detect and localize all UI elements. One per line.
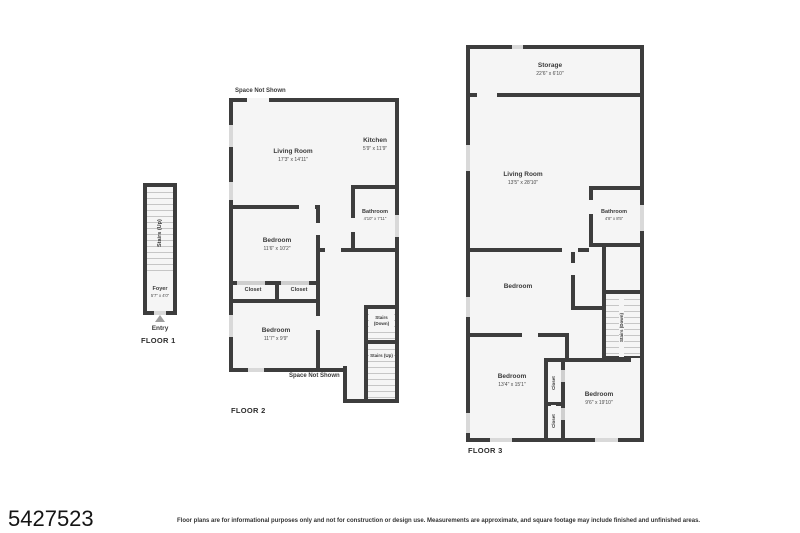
entry-arrow-icon: [155, 315, 165, 322]
floor1-entry-label: Entry: [146, 325, 174, 332]
room-name: Bathroom: [591, 209, 637, 216]
room-name: Bedroom: [236, 327, 316, 336]
room-name: Living Room: [253, 148, 333, 157]
door-opening: [247, 98, 269, 102]
wall: [275, 281, 279, 303]
room-dims: 13'5" x 28'10": [483, 180, 563, 186]
window: [229, 315, 233, 337]
floor2-space-not-shown-bottom: Space Not Shown: [289, 373, 340, 379]
floor1-stairs-label: Stairs (Up): [157, 193, 163, 273]
floor2-bedroom-bottom-label: Bedroom 11'7" x 9'9": [236, 327, 316, 342]
room-name: Bedroom: [237, 237, 317, 246]
room-dims: 17'3" x 14'11": [253, 157, 333, 163]
door-opening: [299, 205, 315, 209]
floor3-bathroom-label: Bathroom 4'8" x 8'5": [591, 209, 637, 222]
room-dims: 13'4" x 15'1": [472, 382, 552, 388]
floor2-plan: Stairs (Down) Stairs (Up) Space Not Show…: [229, 98, 399, 418]
door-opening: [631, 358, 640, 362]
room-dims: 9'6" x 19'10": [568, 400, 630, 406]
floor2-kitchen-label: Kitchen 5'9" x 11'9": [347, 137, 403, 152]
wall: [589, 186, 644, 190]
wall: [466, 333, 569, 337]
window: [466, 297, 470, 317]
floor2-bedroom-mid-label: Bedroom 11'6" x 10'2": [237, 237, 317, 252]
floor2-stairs-down-label: Stairs (Down): [369, 314, 394, 328]
wall: [571, 306, 606, 310]
floor2-title: FLOOR 2: [231, 406, 266, 415]
floor3-bedroom-mid-label: Bedroom: [478, 283, 558, 292]
room-name: Bedroom: [472, 373, 552, 382]
floor1-title: FLOOR 1: [141, 336, 176, 345]
wall: [229, 368, 347, 372]
wall: [351, 185, 395, 189]
door-opening: [477, 93, 497, 97]
floor3-closet-bottom-label: Closet: [551, 405, 556, 438]
room-dims: 11'7" x 9'9": [236, 336, 316, 342]
door-opening: [571, 263, 575, 275]
room-name: Foyer: [147, 286, 173, 293]
floor1-foyer-label: Foyer 5'7" x 4'0": [147, 286, 173, 299]
floor2-living-room-label: Living Room 17'3" x 14'11": [253, 148, 333, 163]
floor3-stairs-down-label: Stairs (Down): [619, 297, 624, 357]
floor2-bathroom-label: Bathroom 4'10" x 7'11": [353, 209, 397, 222]
room-dims: 22'6" x 6'10": [510, 71, 590, 77]
wall: [343, 399, 399, 403]
floor3-plan: Stairs (Down) Storage 22'6" x 6'10" Livi…: [466, 45, 644, 442]
wall: [143, 183, 177, 187]
wall: [544, 358, 548, 438]
window: [466, 413, 470, 433]
floor3-storage-label: Storage 22'6" x 6'10": [510, 62, 590, 77]
room-dims: 11'6" x 10'2": [237, 246, 317, 252]
listing-id: 5427523: [8, 506, 94, 532]
window: [229, 182, 233, 200]
floor3-title: FLOOR 3: [468, 446, 503, 455]
floor3-closet-top-label: Closet: [551, 364, 556, 402]
floor2-stairs-up-label: Stairs (Up): [369, 352, 394, 360]
room-dims: 5'9" x 11'9": [347, 146, 403, 152]
window: [640, 205, 644, 231]
room-name: Living Room: [483, 171, 563, 180]
room-name: Closet: [233, 287, 273, 294]
closet-door: [561, 408, 565, 420]
disclaimer-text: Floor plans are for informational purpos…: [177, 518, 700, 524]
floor-plan-image: Stairs (Up) Foyer 5'7" x 4'0" Entry FLOO…: [0, 0, 800, 533]
floor2-closet-right-label: Closet: [281, 287, 317, 294]
door-opening: [325, 248, 341, 252]
wall: [173, 183, 177, 315]
window: [466, 145, 470, 171]
room-name: Closet: [281, 287, 317, 294]
room-dims: 5'7" x 4'0": [147, 293, 173, 298]
closet-door: [237, 281, 265, 285]
wall: [466, 45, 644, 49]
wall: [466, 45, 470, 442]
room-name: Storage: [510, 62, 590, 71]
closet-door: [281, 281, 309, 285]
floor1-plan: Stairs (Up) Foyer 5'7" x 4'0": [143, 183, 177, 315]
floor2-closet-left-label: Closet: [233, 287, 273, 294]
wall: [571, 252, 575, 306]
wall: [589, 243, 644, 247]
wall: [565, 358, 640, 362]
wall: [343, 366, 347, 403]
door-opening: [316, 316, 320, 330]
window: [595, 438, 618, 442]
floor3-bedroom-right-label: Bedroom 9'6" x 19'10": [568, 391, 630, 406]
door-opening: [316, 223, 320, 235]
floor3-bedroom-left-label: Bedroom 13'4" x 15'1": [472, 373, 552, 388]
floor3-living-room-label: Living Room 13'5" x 28'10": [483, 171, 563, 186]
room-name: Kitchen: [347, 137, 403, 146]
window: [512, 45, 523, 49]
room-name: Bedroom: [568, 391, 630, 400]
closet-door: [561, 370, 565, 382]
door-opening: [562, 248, 578, 252]
window: [490, 438, 512, 442]
room-name: Bedroom: [478, 283, 558, 292]
door-opening: [522, 333, 538, 337]
floor2-space-not-shown-top: Space Not Shown: [235, 88, 286, 94]
room-dims: 4'8" x 8'5": [591, 216, 637, 221]
room-dims: 4'10" x 7'11": [353, 216, 397, 221]
window: [229, 125, 233, 147]
room-name: Bathroom: [353, 209, 397, 216]
window: [248, 368, 264, 372]
